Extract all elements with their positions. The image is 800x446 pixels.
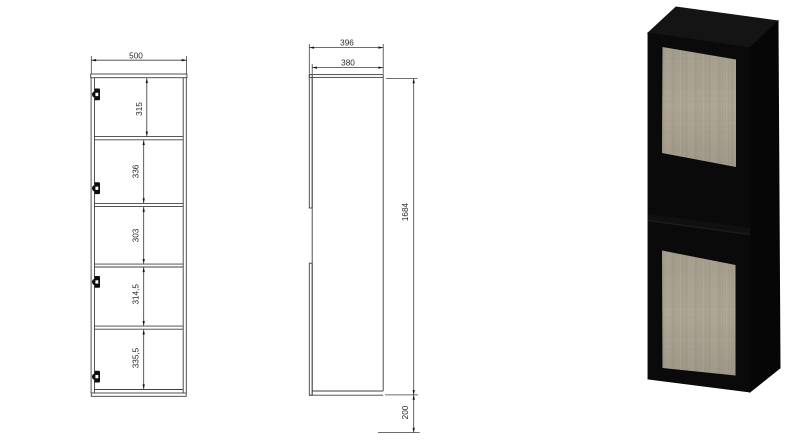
- svg-text:336: 336: [132, 164, 141, 178]
- svg-text:500: 500: [129, 51, 143, 60]
- svg-text:200: 200: [401, 405, 410, 419]
- svg-text:396: 396: [340, 39, 354, 48]
- svg-text:335,5: 335,5: [132, 347, 141, 368]
- svg-text:315: 315: [135, 102, 144, 116]
- svg-text:380: 380: [341, 59, 355, 68]
- svg-text:314,5: 314,5: [132, 284, 141, 305]
- svg-text:1684: 1684: [401, 202, 410, 221]
- svg-text:303: 303: [132, 228, 141, 242]
